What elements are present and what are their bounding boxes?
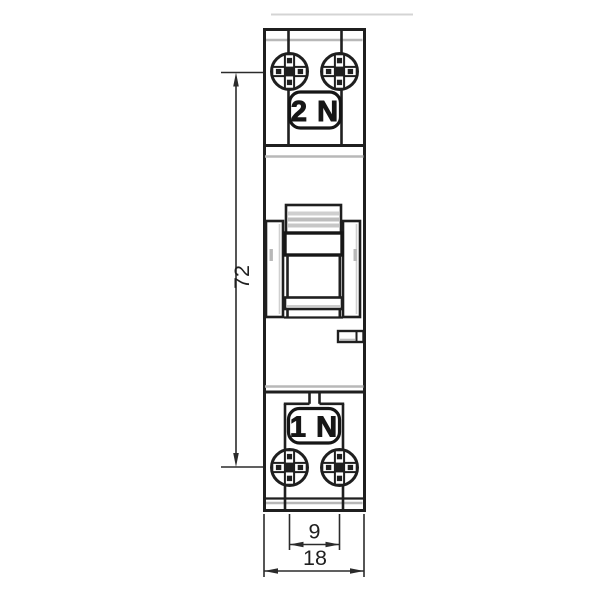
screw-head-icon-bottom-right bbox=[322, 450, 358, 486]
spacing-arrow-left bbox=[290, 542, 304, 548]
rail-left-notch-shade bbox=[270, 249, 273, 261]
dimension-terminal-spacing: 9 bbox=[290, 514, 340, 550]
screw-head-icon-top-left bbox=[272, 54, 308, 90]
dimension-height-text: 72 bbox=[230, 265, 254, 289]
width-arrow-left bbox=[264, 568, 278, 574]
dimension-spacing-text: 9 bbox=[309, 520, 321, 544]
toggle-cap-stripe-1 bbox=[288, 212, 339, 216]
terminal-label-top: 2 N bbox=[290, 92, 341, 128]
toggle-cap-stripe-2 bbox=[288, 218, 339, 222]
side-rail-left bbox=[266, 221, 283, 317]
toggle-crossbar bbox=[285, 298, 342, 310]
toggle-cap-stripe-3 bbox=[288, 224, 339, 228]
dimension-width-text: 18 bbox=[303, 546, 327, 570]
technical-drawing-canvas: 2 N bbox=[0, 0, 600, 600]
screw-head-icon-bottom-left bbox=[272, 450, 308, 486]
side-rail-right bbox=[343, 221, 360, 317]
breaker-dimension-diagram: 2 N bbox=[0, 0, 600, 600]
height-arrow-down bbox=[233, 453, 239, 467]
spacing-arrow-right bbox=[326, 542, 340, 548]
toggle-base bbox=[285, 233, 342, 255]
toggle-handle bbox=[285, 205, 342, 255]
rail-right-notch-shade bbox=[354, 249, 357, 261]
terminal-label-top-text: 2 N bbox=[291, 96, 339, 128]
height-arrow-up bbox=[233, 73, 239, 87]
terminal-label-bottom: 1 N bbox=[289, 409, 340, 444]
width-arrow-right bbox=[350, 568, 364, 574]
screw-head-icon-top-right bbox=[322, 54, 358, 90]
dimension-height: 72 bbox=[221, 73, 263, 468]
terminal-label-bottom-text: 1 N bbox=[290, 412, 338, 444]
side-tab bbox=[338, 331, 364, 342]
